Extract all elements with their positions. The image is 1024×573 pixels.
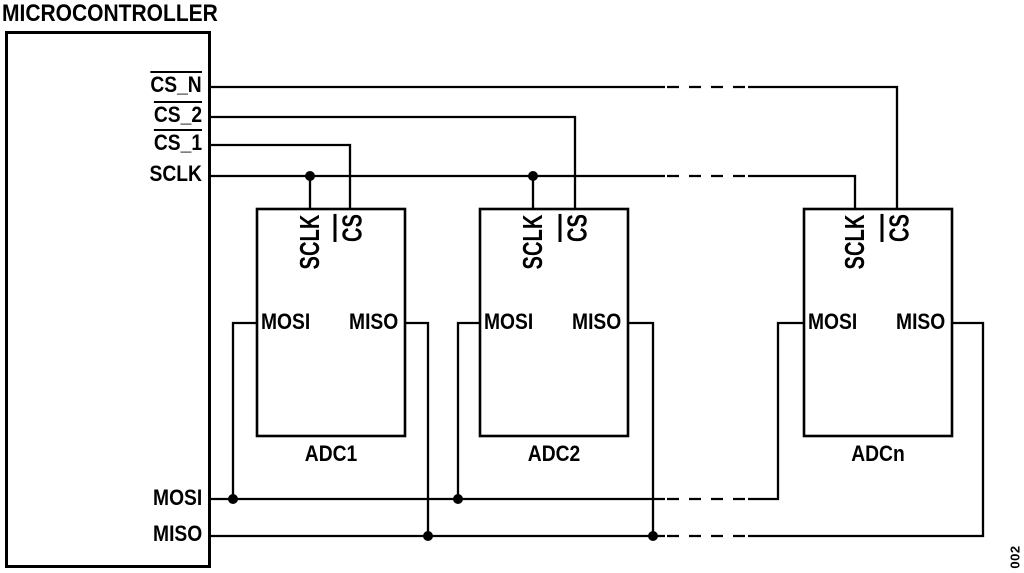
net-mosi: [211, 323, 804, 499]
adc1-pin-mosi: MOSI: [261, 310, 310, 334]
adc2-pin-miso: MISO: [572, 310, 621, 334]
adc2-pin-cs: CS: [559, 214, 592, 242]
spi-daisy-chain-diagram: MICROCONTROLLER CS_N CS_2 CS_1 SCLK MOSI…: [0, 0, 1024, 573]
junction-dot-miso-adc2: [648, 531, 658, 541]
adcn-pin-sclk: SCLK: [841, 215, 869, 270]
mcu-pin-cs-n: CS_N: [151, 71, 202, 97]
junction-dot-sclk-adc2: [528, 171, 538, 181]
junction-dot-mosi-adc2: [453, 494, 463, 504]
adc1-pin-cs: CS: [334, 214, 367, 242]
mcu-pin-cs-2: CS_2: [154, 101, 202, 127]
adc2-pin-cs-label: CS: [559, 214, 592, 242]
net-cs-2: [211, 117, 575, 209]
adcn-pin-cs: CS: [881, 214, 914, 242]
adc2-pin-mosi: MOSI: [484, 310, 533, 334]
mcu-pin-cs-1-label: CS_1: [154, 129, 202, 154]
adc1-pin-miso: MISO: [349, 310, 398, 334]
adc1-name: ADC1: [266, 442, 396, 466]
adc2-pin-sclk: SCLK: [519, 215, 547, 270]
adcn-pin-miso: MISO: [896, 310, 945, 334]
junction-dot-sclk-adc1: [305, 171, 315, 181]
mcu-pin-miso: MISO: [153, 522, 202, 546]
mcu-pin-cs-1: CS_1: [154, 129, 202, 155]
adc1-pin-sclk: SCLK: [296, 215, 324, 270]
figure-code: 002: [1008, 545, 1023, 568]
adcn-pin-cs-label: CS: [881, 214, 914, 242]
mcu-pin-mosi: MOSI: [153, 486, 202, 510]
net-cs-n: [211, 87, 897, 209]
mcu-pin-cs-2-label: CS_2: [154, 101, 202, 126]
mcu-pin-sclk: SCLK: [150, 162, 202, 186]
mcu-pin-cs-n-label: CS_N: [151, 71, 202, 96]
microcontroller-title: MICROCONTROLLER: [2, 1, 218, 27]
adc1-pin-cs-label: CS: [334, 214, 367, 242]
adc2-name: ADC2: [489, 442, 619, 466]
adcn-pin-mosi: MOSI: [808, 310, 857, 334]
junction-dot-miso-adc1: [423, 531, 433, 541]
adcn-name: ADCn: [813, 442, 943, 466]
net-miso: [211, 323, 983, 536]
junction-dot-mosi-adc1: [228, 494, 238, 504]
